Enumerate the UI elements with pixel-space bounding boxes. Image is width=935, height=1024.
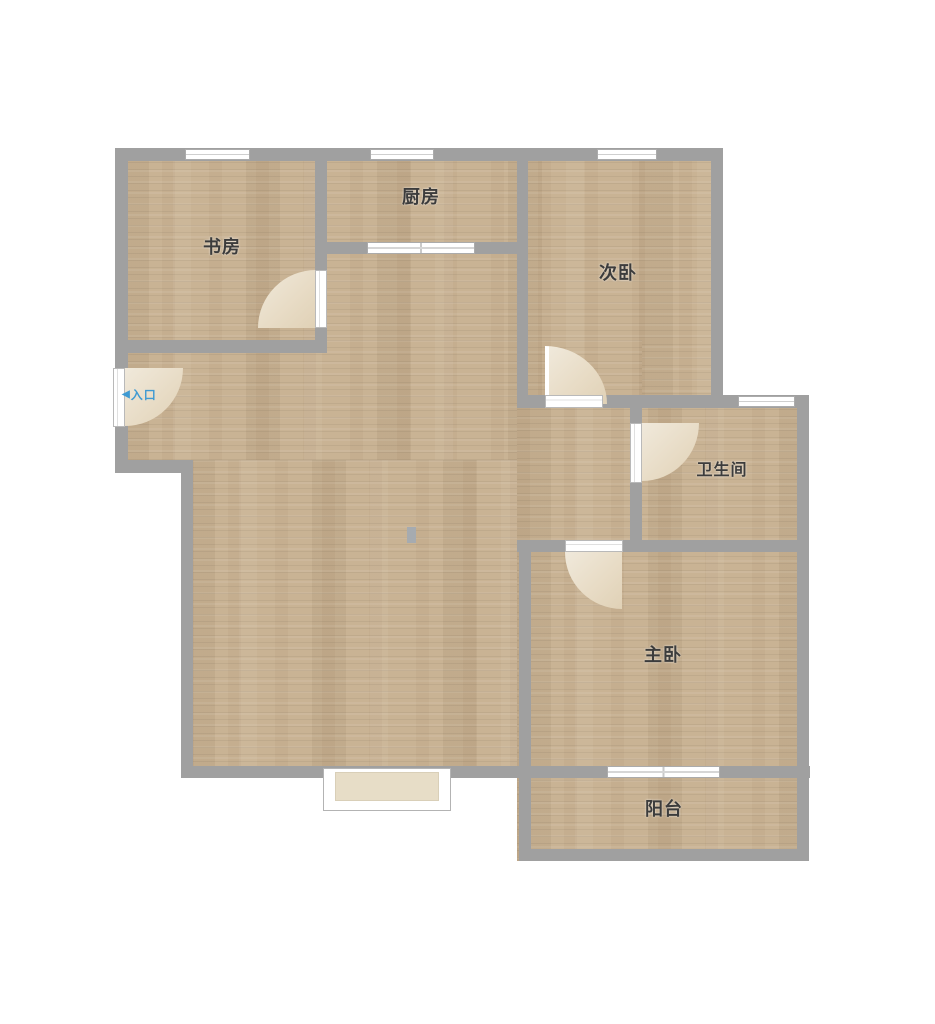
wall-outer-left-lower	[181, 460, 193, 778]
room-label-balcony: 阳台	[645, 795, 683, 821]
wall-outer-right	[797, 395, 809, 861]
window-study-top	[185, 149, 250, 160]
floor-living-room	[181, 460, 531, 778]
sliding-door-balcony	[607, 766, 720, 778]
floorplan-canvas: 书房 厨房 次卧 卫生间 主卧 阳台 ◀ 入口	[0, 0, 935, 1024]
entrance-marker: ◀ 入口	[122, 386, 157, 403]
window-secondary-bedroom-top	[597, 149, 657, 160]
sliding-window-kitchen	[367, 242, 475, 254]
window-bathroom-top	[738, 396, 795, 407]
entrance-arrow-icon: ◀	[122, 390, 130, 400]
wall-master-balcony-left	[519, 540, 531, 861]
room-label-kitchen: 厨房	[402, 183, 440, 209]
wall-secondary-bedroom-right	[711, 148, 723, 407]
bay-window-sill	[335, 772, 439, 801]
room-label-study: 书房	[203, 233, 241, 259]
entrance-label: 入口	[131, 386, 157, 403]
room-label-master-bedroom: 主卧	[644, 641, 682, 667]
room-label-bathroom: 卫生间	[696, 456, 747, 480]
door-leaf-study	[315, 270, 327, 328]
wall-balcony-bottom	[519, 849, 809, 861]
structural-column	[407, 527, 416, 543]
room-label-secondary-bedroom: 次卧	[599, 259, 637, 285]
door-leaf-bathroom	[630, 423, 642, 483]
door-threshold-secondary-bedroom	[545, 395, 603, 408]
door-threshold-master-bedroom	[565, 540, 623, 552]
wall-study-bottom	[115, 340, 327, 353]
wall-secondary-bedroom-left	[517, 148, 528, 408]
wall-master-bedroom-top	[517, 540, 809, 552]
window-kitchen-top	[370, 149, 434, 160]
